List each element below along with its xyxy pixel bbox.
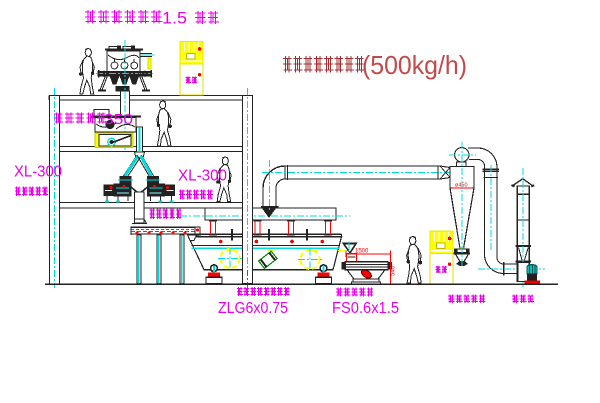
svg-text:ø450: ø450 (455, 183, 468, 189)
svg-text:XL-300: XL-300 (14, 164, 62, 181)
svg-text:540: 540 (391, 265, 397, 276)
svg-text:350: 350 (104, 111, 133, 128)
svg-text:ZLG6x0.75: ZLG6x0.75 (218, 300, 288, 317)
svg-text:1.5: 1.5 (162, 9, 187, 28)
svg-text:FS0.6x1.5: FS0.6x1.5 (332, 300, 399, 317)
svg-text:XL-300: XL-300 (178, 168, 227, 185)
svg-text:1500: 1500 (355, 249, 369, 255)
svg-text:(500kg/h): (500kg/h) (362, 50, 467, 80)
